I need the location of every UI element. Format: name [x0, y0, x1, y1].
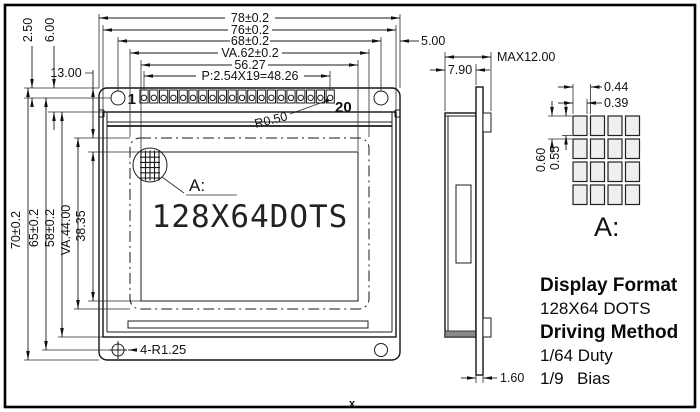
dim-va-offset: 13.00 — [50, 66, 81, 80]
side-elastomer — [456, 185, 471, 263]
dim-hole-spacing-v: 65±0.2 — [27, 209, 41, 247]
pin-hole — [161, 95, 166, 100]
bottom-slot — [128, 321, 368, 328]
dim-overall-height: 70±0.2 — [9, 211, 23, 249]
pin-number-last: 20 — [335, 99, 352, 116]
pin-hole — [298, 95, 303, 100]
pin-hole — [239, 95, 244, 100]
pin-hole — [200, 95, 205, 100]
pin-hole — [269, 95, 274, 100]
pin-hole — [210, 95, 215, 100]
detail-dot — [573, 116, 587, 136]
pin-hole — [249, 95, 254, 100]
dim-pcb-thickness: 1.60 — [500, 371, 524, 385]
dim-dot-width: 0.39 — [604, 96, 628, 110]
pin-hole — [279, 95, 284, 100]
detail-dot — [608, 139, 622, 159]
dim-bezel-height: 58±0.2 — [43, 209, 57, 247]
drawing-canvas: 1 20 R0.50 128X64DOTS A: 4-R1.25 x — [0, 0, 700, 412]
dim-va-height: VA.44.00 — [59, 205, 73, 256]
spec-bias-num: 1/9 — [540, 369, 564, 388]
detail-dot — [608, 162, 622, 182]
pin-hole — [190, 95, 195, 100]
detail-dot — [626, 162, 640, 182]
pin-number-first: 1 — [128, 91, 136, 108]
detail-dot — [626, 139, 640, 159]
corner-mark: x — [349, 398, 356, 410]
detail-dot — [608, 185, 622, 205]
spec-duty: 1/64 Duty — [540, 346, 613, 365]
mount-note: 4-R1.25 — [140, 342, 186, 357]
pin-hole — [220, 95, 225, 100]
pin-hole — [318, 95, 323, 100]
pin-hole — [288, 95, 293, 100]
pin-hole — [171, 95, 176, 100]
dim-pin-pitch: P:2.54X19=48.26 — [202, 69, 299, 83]
dim-dot-pitch-h: 0.44 — [604, 80, 628, 94]
pin-hole — [181, 95, 186, 100]
detail-ref-label: A: — [189, 176, 205, 195]
detail-a-label: A: — [594, 212, 620, 242]
radius-leader-dot — [325, 99, 329, 103]
pin-hole — [151, 95, 156, 100]
detail-dot — [608, 116, 622, 136]
side-pcb — [476, 87, 483, 375]
detail-dot — [626, 185, 640, 205]
spec-bias-word: Bias — [577, 369, 610, 388]
detail-dot — [573, 139, 587, 159]
pin-hole — [230, 95, 235, 100]
detail-dot — [591, 185, 605, 205]
dim-hole-offset: 2.50 — [21, 18, 35, 42]
detail-dot — [573, 185, 587, 205]
side-tab-bottom — [483, 318, 491, 337]
detail-dot — [573, 162, 587, 182]
dim-edge-offset: 5.00 — [421, 34, 445, 48]
detail-dot — [591, 162, 605, 182]
pin-hole — [141, 95, 146, 100]
dim-depth-max: MAX12.00 — [497, 50, 555, 64]
dim-glass-offset: 6.00 — [43, 18, 57, 42]
lcd-module-drawing: 1 20 R0.50 128X64DOTS A: 4-R1.25 x — [0, 0, 700, 412]
detail-dot — [591, 139, 605, 159]
side-tab-top — [483, 113, 491, 132]
dim-dot-pitch-v: 0.60 — [534, 148, 548, 172]
screen-sample-text: 128X64DOTS — [152, 199, 349, 235]
pin-hole — [308, 95, 313, 100]
dim-depth-module: 7.90 — [448, 63, 472, 77]
pin-hole — [259, 95, 264, 100]
spec-driving-title: Driving Method — [540, 322, 678, 343]
detail-dot — [591, 116, 605, 136]
dim-aa-height: 38.35 — [74, 210, 88, 241]
spec-format-value: 128X64 DOTS — [540, 299, 651, 318]
dim-dot-height: 0.55 — [548, 146, 562, 170]
side-bottom-pad — [445, 331, 476, 337]
detail-dot — [626, 116, 640, 136]
spec-format-title: Display Format — [540, 275, 678, 296]
